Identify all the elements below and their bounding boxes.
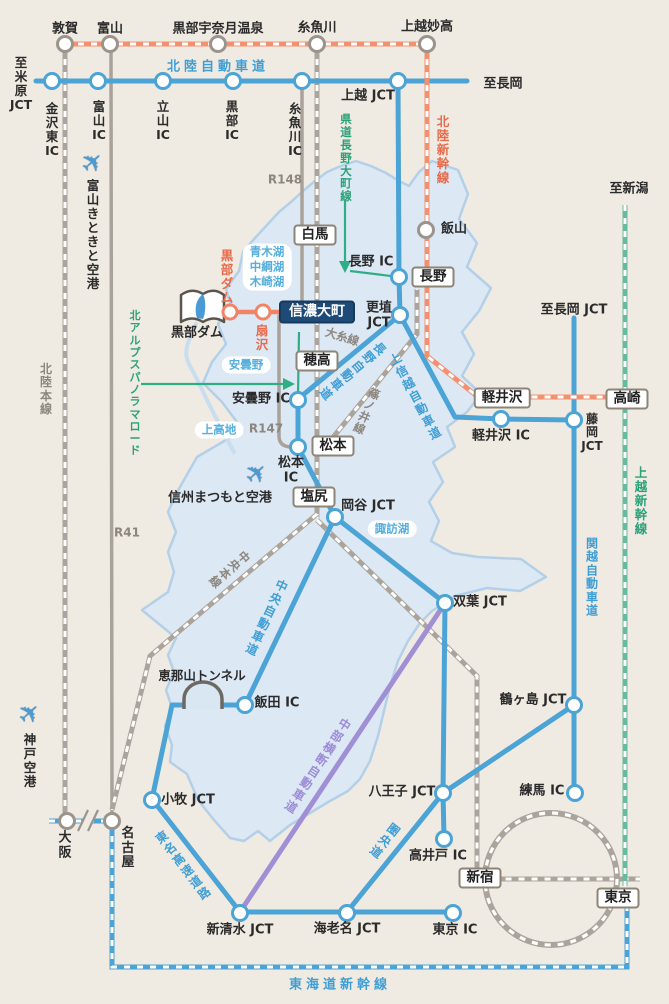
node-kurobe-ic [226, 74, 241, 89]
joetsu-shinkansen-label: 上 越 新 幹 線 [635, 466, 648, 536]
kurobe-dam-station-label: 黒 部 ダ ム [221, 249, 234, 305]
tokyo-ic-label: 東京 IC [433, 924, 478, 939]
azumino-ic-label: 安曇野 IC [232, 393, 290, 408]
node-hachioji-jct [436, 786, 451, 801]
kanetsu-expwy-label: 関 越 自 動 車 道 [586, 538, 598, 619]
node-futaba-jct [438, 596, 453, 611]
itoigawa-ic-label: 糸 魚 川 IC [288, 102, 302, 158]
node-tateyama-ic [156, 74, 171, 89]
takasaki-box: 高崎 [606, 389, 649, 410]
node-tsurugashima-jct [567, 698, 582, 713]
node-iiyama [419, 223, 434, 238]
matsumoto-box: 松本 [312, 436, 355, 457]
station-nagoya: 名 古 屋 [121, 827, 134, 871]
node-shin-shimizu-jct [233, 906, 248, 921]
fujioka-jct-label: 藤 岡 JCT [581, 413, 602, 453]
node-matsumoto-ic [291, 440, 306, 455]
node-nagano-ic [392, 270, 407, 285]
route-148-label: R148 [268, 173, 302, 186]
node-koshoku-jct [393, 308, 408, 323]
hachioji-jct-label: 八王子 JCT [369, 786, 436, 801]
hakuba-box: 白馬 [294, 225, 337, 246]
nerima-ic-label: 練馬 IC [520, 785, 565, 800]
dam-icon [181, 291, 224, 322]
shinjuku-box: 新宿 [459, 868, 502, 889]
station-toyama: 富山 [97, 23, 123, 38]
station-tsuruga: 敦賀 [52, 23, 78, 38]
aoki-lakes-pill: 青木湖 中綱湖 木崎湖 [243, 244, 292, 291]
panorama-road-label: 北 ア ル プ ス パ ノ ラ マ ロ ー ド [130, 310, 141, 458]
joetsu-jct-label: 上越 JCT [341, 90, 395, 105]
shiojiri-box: 塩尻 [293, 487, 336, 508]
direction-nagaoka: 至長岡 [483, 78, 522, 93]
route-147-label: R147 [249, 422, 283, 435]
node-takaido-ic [437, 832, 452, 847]
karuizawa-box: 軽井沢 [474, 388, 531, 409]
kurobe-dam-label: 黒部ダム [171, 327, 223, 342]
direction-niigata: 至新潟 [609, 183, 648, 198]
direction-maibara: 至 米 原 JCT [10, 56, 32, 112]
tateyama-ic-label: 立 山 IC [156, 100, 170, 142]
takaido-ic-label: 高井戸 IC [409, 850, 467, 865]
node-kurobe-unazuki [211, 37, 226, 52]
node-joetsu-myoko [420, 37, 435, 52]
kobe-airport-label: 神 戸 空 港 [24, 733, 37, 789]
koshoku-jct-label: 更埴 JCT [366, 301, 392, 330]
node-iida-ic [238, 698, 253, 713]
toyama-airport-label: 富 山 き と き と 空 港 [87, 179, 100, 291]
iida-ic-label: 飯田 IC [255, 697, 300, 712]
route-41-label: R41 [114, 526, 140, 539]
tunnel-icon [184, 682, 222, 709]
ebina-jct-label: 海老名 JCT [314, 923, 381, 938]
ogizawa-label: 扇 沢 [256, 324, 269, 352]
hotaka-box: 穂高 [296, 351, 339, 372]
node-osaka [60, 814, 75, 829]
node-tokyo-ic [446, 906, 461, 921]
node-itoigawa [310, 37, 325, 52]
node-toyama [103, 37, 118, 52]
node-fujioka-jct [567, 413, 582, 428]
hokuriku-shinkansen-label: 北 陸 新 幹 線 [437, 115, 450, 185]
matsumoto-airport-label: 信州まつもと空港 [168, 492, 272, 507]
node-tsuruga [58, 37, 73, 52]
nagano-box: 長野 [412, 267, 455, 288]
station-kurobe-unazuki-onsen: 黒部宇奈月温泉 [172, 23, 263, 38]
tokaido-shinkansen-label: 東海道新幹線 [289, 979, 391, 994]
access-map: 敦賀 富山 黒部宇奈月温泉 糸魚川 上越妙高 至 米 原 JCT 至長岡 至新潟… [0, 0, 669, 1004]
kamikochi-pill: 上高地 [195, 422, 244, 439]
node-karuizawa-ic [494, 412, 509, 427]
azumino-pill: 安曇野 [222, 357, 271, 374]
kendo-nagano-omachi-label: 県 道 長 野 大 町 線 [340, 113, 352, 203]
enasan-tunnel-label: 恵那山トンネル [158, 669, 245, 683]
station-itoigawa: 糸魚川 [297, 22, 336, 37]
futaba-jct-label: 双葉 JCT [453, 596, 507, 611]
node-nerima-ic [568, 786, 583, 801]
hokuriku-expwy-label: 北陸自動車道 [167, 61, 269, 76]
kurobe-ic-label: 黒 部 IC [225, 100, 239, 142]
station-joetsu-myoko: 上越妙高 [401, 21, 453, 36]
node-komaki-jct [145, 793, 160, 808]
node-itoigawa-ic [295, 74, 310, 89]
komaki-jct-label: 小牧 JCT [161, 794, 215, 809]
direction-nagaoka-jct: 至長岡 JCT [541, 304, 608, 319]
station-iiyama: 飯山 [441, 223, 467, 238]
node-toyama-ic [91, 74, 106, 89]
station-osaka: 大 阪 [58, 831, 71, 860]
matsumoto-ic-label: 松本 IC [278, 456, 304, 485]
toyama-ic-label: 富 山 IC [92, 100, 106, 142]
karuizawa-ic-label: 軽井沢 IC [472, 430, 530, 445]
suwako-pill: 諏訪湖 [368, 521, 417, 538]
kanazawa-higashi-ic-label: 金 沢 東 IC [45, 102, 59, 158]
hokuriku-honsen-label: 北 陸 本 線 [40, 363, 52, 417]
nagano-ic-label: 長野 IC [349, 256, 394, 271]
node-kanazawa-higashi-ic [45, 74, 60, 89]
route-41-line [111, 46, 112, 812]
okaya-jct-label: 岡谷 JCT [341, 500, 395, 515]
tokyo-box: 東京 [597, 888, 640, 909]
tsurugashima-jct-label: 鶴ヶ島 JCT [500, 694, 567, 709]
node-joetsu-jct [391, 74, 406, 89]
node-ogizawa [256, 305, 270, 319]
node-nagoya [105, 814, 120, 829]
node-kurobe-dam [223, 305, 237, 319]
node-ebina-jct [340, 906, 355, 921]
node-azumino-ic [291, 393, 306, 408]
shin-shimizu-jct-label: 新清水 JCT [207, 924, 274, 939]
shinano-omachi-box: 信濃大町 [279, 301, 355, 324]
